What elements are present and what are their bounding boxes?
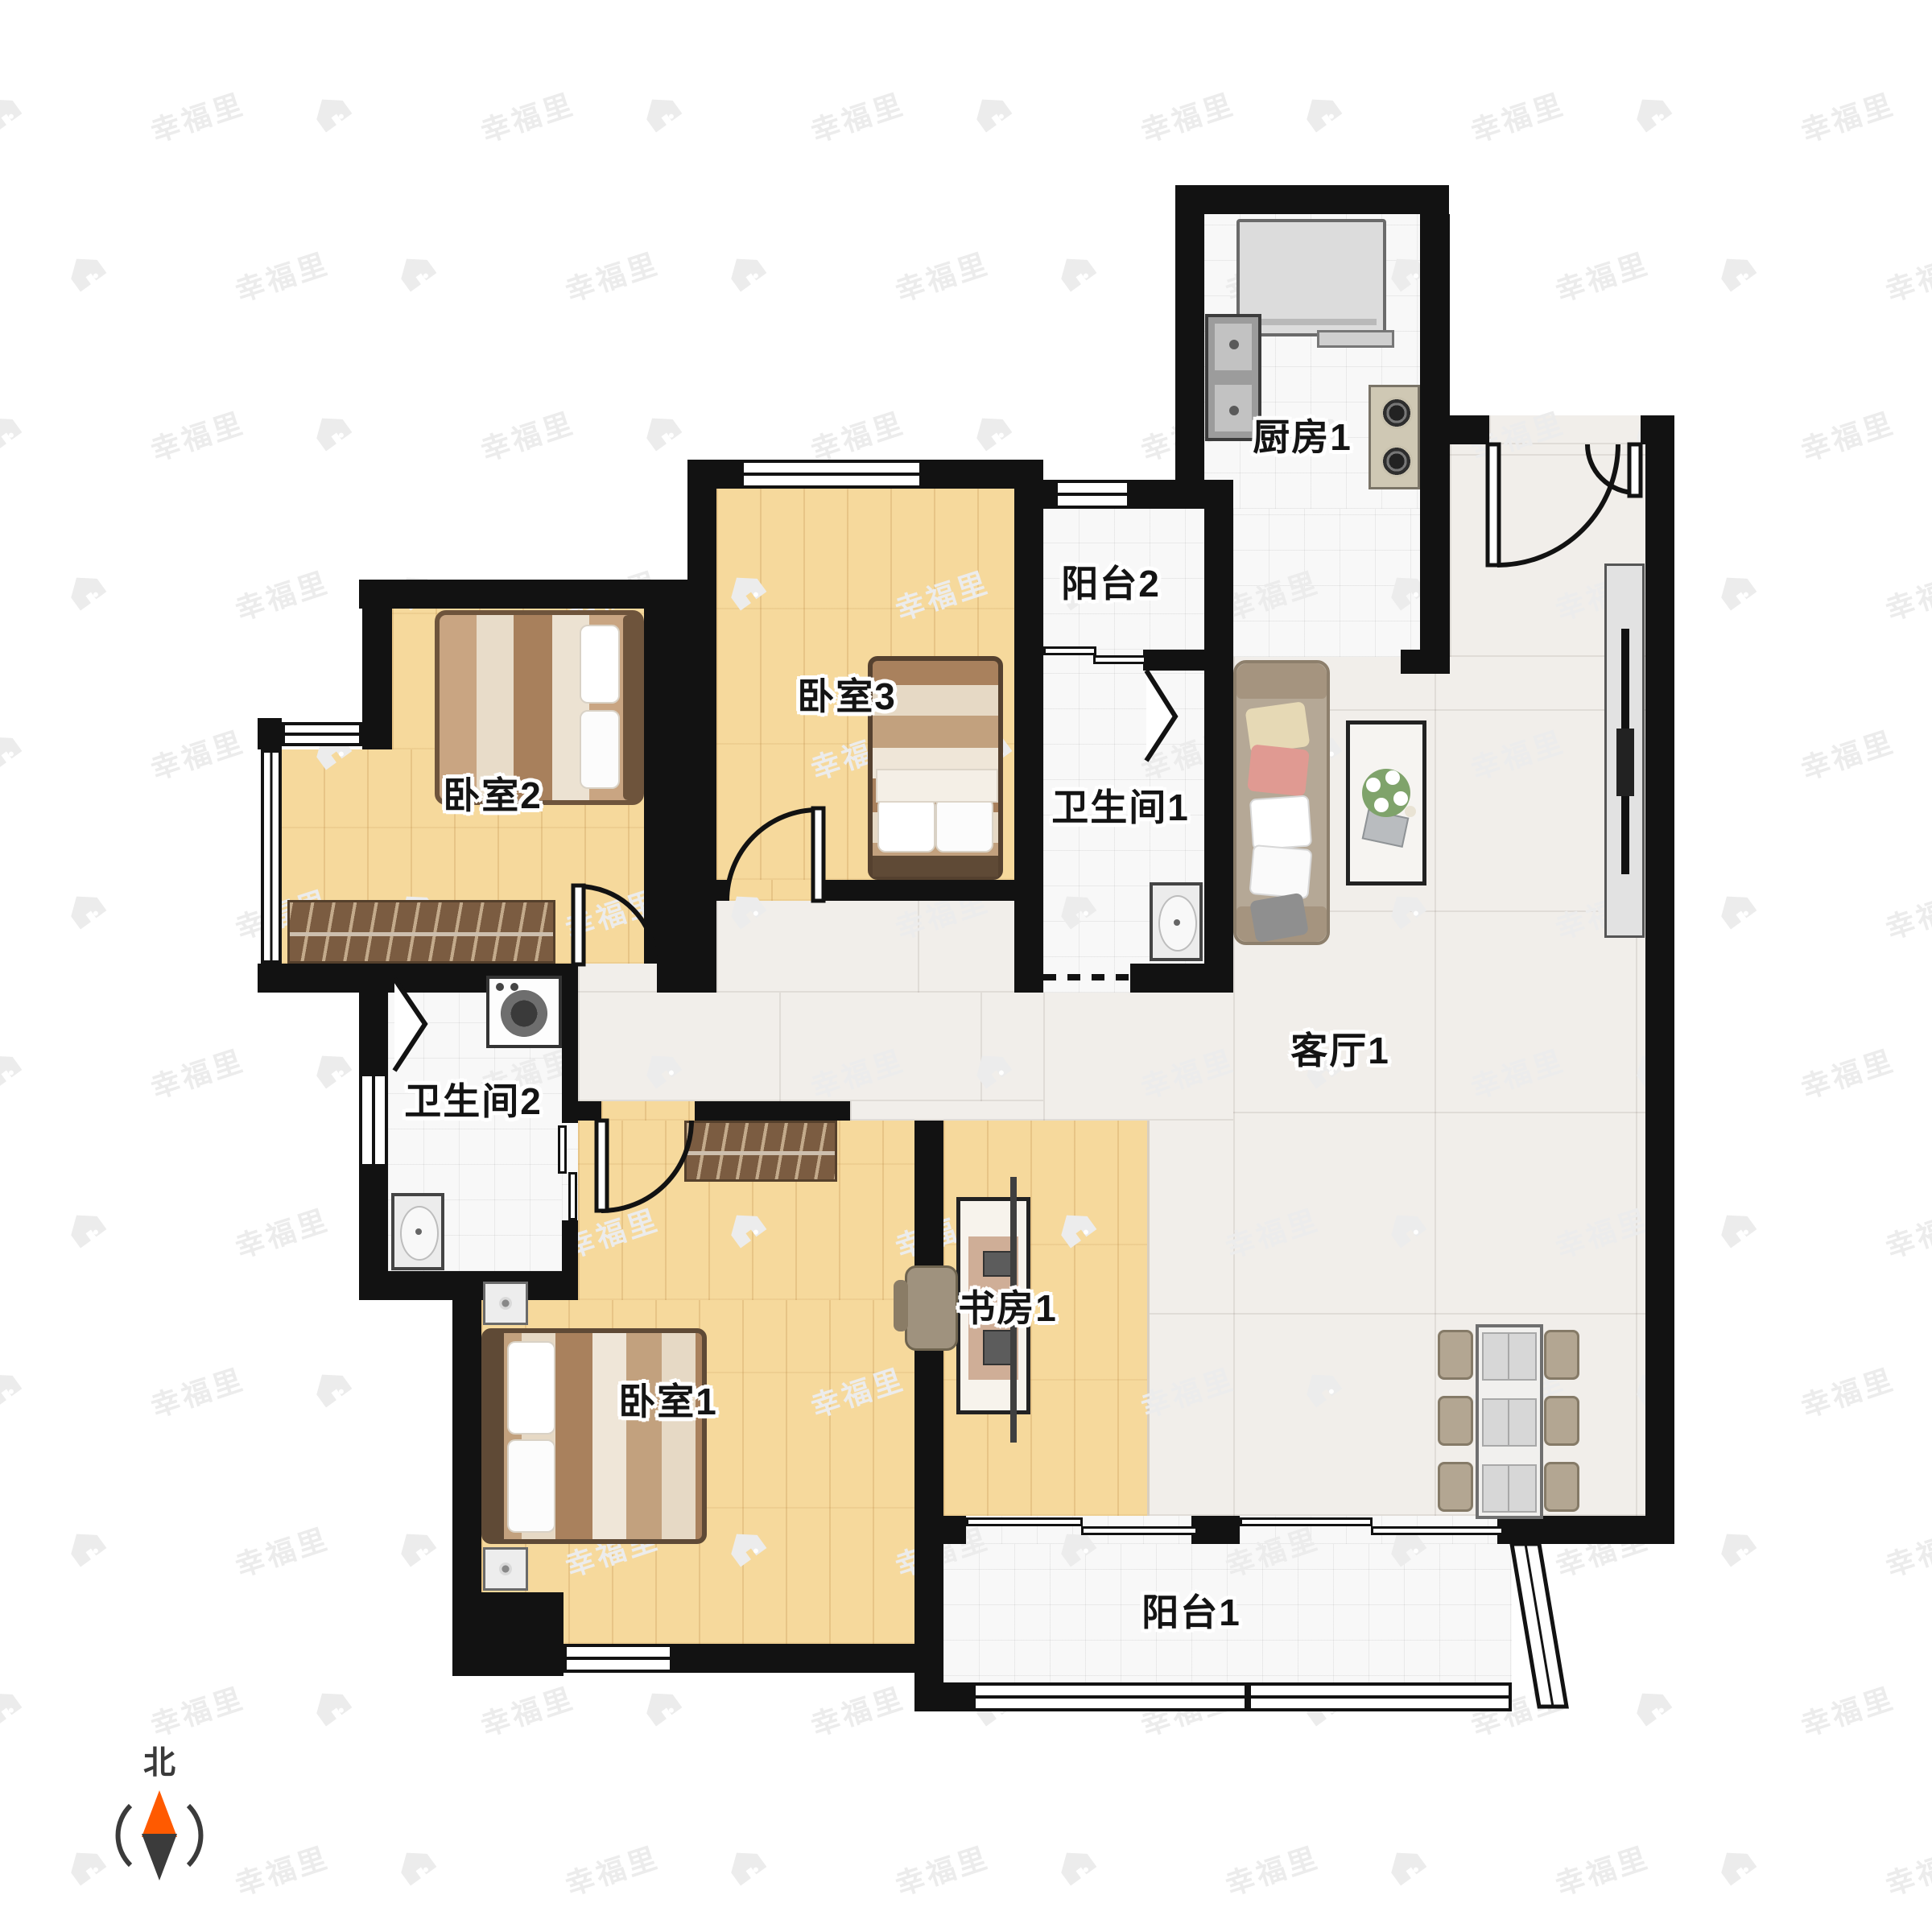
house-icon xyxy=(1714,1843,1760,1892)
house-icon xyxy=(309,1365,355,1414)
wall xyxy=(1130,480,1233,509)
floor-plan: 幸福里幸福里幸福里幸福里幸福里幸福里幸福里幸福里幸福里幸福里幸福里幸福里幸福里幸… xyxy=(0,0,1932,1932)
window xyxy=(359,1073,388,1167)
watermark-text: 幸福里 xyxy=(475,1675,580,1745)
window xyxy=(563,1644,673,1673)
watermark-text: 幸福里 xyxy=(229,559,334,630)
sliding-door-panel[interactable] xyxy=(558,1125,567,1174)
coffee-table xyxy=(1346,720,1426,885)
house-icon xyxy=(64,568,109,617)
hall-floor xyxy=(578,964,657,993)
wall xyxy=(657,964,716,993)
house-icon xyxy=(724,250,770,298)
house-icon xyxy=(1714,250,1760,298)
wall xyxy=(1420,415,1489,444)
house-icon xyxy=(1714,568,1760,617)
bed xyxy=(481,1328,707,1544)
hall-floor xyxy=(716,901,1014,993)
watermark-text: 幸福里 xyxy=(559,1835,664,1905)
watermark-text: 幸福里 xyxy=(1795,1038,1900,1108)
watermark-text: 幸福里 xyxy=(890,1835,994,1905)
house-icon xyxy=(309,90,355,138)
room-label-balcony2: 阳台2 xyxy=(1061,555,1161,608)
watermark-text: 幸福里 xyxy=(1795,400,1900,470)
watermark-text: 幸福里 xyxy=(145,81,250,151)
dining-chair xyxy=(1544,1396,1579,1446)
room-label-kitchen: 厨房1 xyxy=(1253,408,1352,461)
watermark-text: 幸福里 xyxy=(145,1675,250,1745)
balcony-railing-window xyxy=(972,1682,1248,1711)
room-label-study: 书房1 xyxy=(958,1279,1058,1332)
watermark-text: 幸福里 xyxy=(229,1197,334,1267)
house-icon xyxy=(1629,90,1675,138)
window xyxy=(261,749,282,964)
wall xyxy=(1497,1516,1674,1544)
watermark-text: 幸福里 xyxy=(0,1835,4,1905)
wall xyxy=(923,460,1043,489)
wall xyxy=(695,1101,850,1121)
opening-dashed-line xyxy=(1043,974,1130,980)
house-icon xyxy=(0,409,24,457)
wall xyxy=(943,1682,972,1711)
house-icon xyxy=(639,1684,685,1732)
dining-chair xyxy=(1438,1462,1473,1512)
house-icon xyxy=(1384,1843,1430,1892)
watermark-text: 幸福里 xyxy=(1220,1835,1324,1905)
house-icon xyxy=(64,1206,109,1254)
house-icon xyxy=(394,250,440,298)
watermark-text: 幸福里 xyxy=(1795,719,1900,789)
watermark-text: 幸福里 xyxy=(0,878,4,948)
bathroom-sink xyxy=(391,1193,444,1270)
watermark-text: 幸福里 xyxy=(145,719,250,789)
compass-north-needle xyxy=(142,1790,177,1837)
house-icon xyxy=(1299,90,1345,138)
watermark-text: 幸福里 xyxy=(229,1516,334,1586)
sliding-door-panel[interactable] xyxy=(1081,1526,1198,1535)
watermark-text: 幸福里 xyxy=(1795,1356,1900,1426)
dining-table xyxy=(1476,1324,1543,1519)
wall xyxy=(1191,1516,1240,1544)
wall xyxy=(359,1271,578,1300)
house-icon xyxy=(724,1843,770,1892)
house-icon xyxy=(969,90,1015,138)
wall xyxy=(1175,214,1204,480)
watermark-text: 幸福里 xyxy=(1880,559,1932,630)
watermark-text: 幸福里 xyxy=(475,81,580,151)
wall xyxy=(562,993,578,1123)
wall xyxy=(359,580,716,609)
watermark-text: 幸福里 xyxy=(1880,878,1932,948)
dining-chair xyxy=(1438,1396,1473,1446)
nightstand xyxy=(483,1282,528,1325)
house-icon xyxy=(639,409,685,457)
window xyxy=(1055,480,1130,509)
wall xyxy=(1043,480,1055,509)
wall xyxy=(914,1516,966,1544)
house-icon xyxy=(0,90,24,138)
watermark-text: 幸福里 xyxy=(145,1038,250,1108)
watermark-text: 幸福里 xyxy=(0,1516,4,1586)
wall xyxy=(818,880,1014,901)
watermark-text: 幸福里 xyxy=(890,241,994,311)
watermark-text: 幸福里 xyxy=(1880,1835,1932,1905)
house-icon xyxy=(639,90,685,138)
watermark-text: 幸福里 xyxy=(1880,1197,1932,1267)
room-label-bedroom1: 卧室1 xyxy=(618,1373,718,1426)
kitchen-floor xyxy=(1233,509,1420,657)
sliding-door-panel[interactable] xyxy=(1371,1526,1504,1535)
desk-chair xyxy=(892,1261,960,1351)
watermark-text: 幸福里 xyxy=(1880,241,1932,311)
watermark-text: 幸福里 xyxy=(145,400,250,470)
gas-stove xyxy=(1368,385,1420,489)
house-icon xyxy=(64,1843,109,1892)
house-icon xyxy=(64,1525,109,1573)
watermark-text: 幸福里 xyxy=(805,1675,910,1745)
watermark-text: 幸福里 xyxy=(229,241,334,311)
living-floor xyxy=(1147,1121,1233,1516)
washing-machine xyxy=(486,976,562,1048)
wall xyxy=(1204,657,1233,993)
sliding-door-panel[interactable] xyxy=(1093,655,1146,664)
house-icon xyxy=(1629,1684,1675,1732)
compass-icon xyxy=(118,1790,201,1880)
wardrobe xyxy=(287,900,555,964)
house-icon xyxy=(1714,1206,1760,1254)
north-label: 北 xyxy=(143,1736,175,1783)
room-label-living: 客厅1 xyxy=(1290,1022,1390,1075)
watermark-text: 幸福里 xyxy=(229,1835,334,1905)
wall xyxy=(1014,489,1043,993)
watermark-text: 幸福里 xyxy=(145,1356,250,1426)
house-icon xyxy=(394,1525,440,1573)
balcony-railing-window xyxy=(1248,1682,1512,1711)
watermark-text: 幸福里 xyxy=(1795,1675,1900,1745)
sliding-door-panel[interactable] xyxy=(1043,646,1096,655)
house-icon xyxy=(309,1046,355,1095)
house-icon xyxy=(0,1365,24,1414)
wall xyxy=(362,609,392,749)
wall xyxy=(258,718,282,749)
watermark-text: 幸福里 xyxy=(0,559,4,630)
house-icon xyxy=(309,409,355,457)
dining-chair xyxy=(1438,1330,1473,1380)
watermark-text: 幸福里 xyxy=(805,81,910,151)
room-label-bedroom2: 卧室2 xyxy=(443,766,543,819)
balcony-side-window xyxy=(1512,1544,1567,1707)
watermark-text: 幸福里 xyxy=(1465,81,1570,151)
wardrobe xyxy=(684,1121,837,1182)
wall xyxy=(1130,964,1233,993)
wall xyxy=(1175,185,1449,214)
entry-floor xyxy=(1489,415,1641,444)
sofa xyxy=(1233,660,1330,945)
hall-floor xyxy=(578,993,1043,1101)
house-icon xyxy=(1054,250,1100,298)
sliding-door-panel[interactable] xyxy=(1240,1517,1373,1526)
window xyxy=(282,722,362,746)
wall xyxy=(687,460,741,489)
wall xyxy=(673,1644,914,1673)
wall xyxy=(1645,444,1674,1516)
house-icon xyxy=(969,409,1015,457)
dining-chair xyxy=(1544,1462,1579,1512)
hall-floor xyxy=(1043,993,1233,1121)
bedroom3-floor xyxy=(728,880,818,901)
room-label-bath2: 卫生间2 xyxy=(404,1072,543,1125)
tv-console xyxy=(1604,563,1645,938)
watermark-text: 幸福里 xyxy=(475,400,580,470)
bedroom1-floor xyxy=(601,1101,695,1121)
wall xyxy=(1204,509,1233,657)
house-icon xyxy=(394,1843,440,1892)
wall xyxy=(687,489,716,993)
wall xyxy=(914,1121,943,1711)
wall xyxy=(644,609,687,964)
watermark-text: 幸福里 xyxy=(0,1197,4,1267)
dining-chair xyxy=(1544,1330,1579,1380)
house-icon xyxy=(0,1684,24,1732)
house-icon xyxy=(1714,1525,1760,1573)
sliding-door-panel[interactable] xyxy=(568,1172,577,1220)
house-icon xyxy=(64,887,109,935)
watermark-text: 幸福里 xyxy=(1550,1835,1654,1905)
sliding-door-panel[interactable] xyxy=(966,1517,1083,1526)
watermark-text: 幸福里 xyxy=(1550,241,1654,311)
wall xyxy=(716,880,728,901)
hall-floor xyxy=(850,1101,1043,1121)
house-icon xyxy=(64,250,109,298)
watermark-text: 幸福里 xyxy=(1795,81,1900,151)
room-label-bedroom3: 卧室3 xyxy=(797,667,897,720)
nightstand xyxy=(483,1547,528,1591)
wall xyxy=(481,1644,563,1673)
watermark-text: 幸福里 xyxy=(1880,1516,1932,1586)
wall xyxy=(1641,415,1674,444)
house-icon xyxy=(0,728,24,776)
compass-south-needle xyxy=(142,1834,177,1880)
watermark-text: 幸福里 xyxy=(0,241,4,311)
floor-transition-line xyxy=(1147,1121,1150,1516)
window xyxy=(741,460,923,489)
room-label-bath1: 卫生间1 xyxy=(1051,778,1190,832)
house-icon xyxy=(1054,1843,1100,1892)
bathroom-sink xyxy=(1150,882,1203,961)
room-label-balcony1: 阳台1 xyxy=(1141,1583,1241,1637)
house-icon xyxy=(0,1046,24,1095)
house-icon xyxy=(309,1684,355,1732)
watermark-text: 幸福里 xyxy=(1135,81,1240,151)
watermark-text: 幸福里 xyxy=(559,241,664,311)
wall xyxy=(1401,650,1450,674)
wall xyxy=(578,1101,601,1121)
wall xyxy=(359,993,388,1073)
house-icon xyxy=(1714,887,1760,935)
